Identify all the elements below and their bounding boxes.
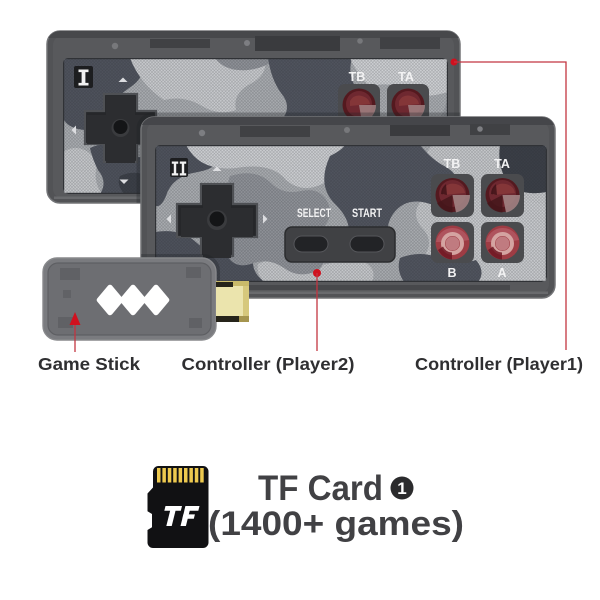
svg-text:Game Stick: Game Stick	[38, 354, 140, 374]
svg-text:A: A	[497, 266, 506, 280]
svg-text:TB: TB	[349, 70, 366, 84]
svg-text:Controller (Player2): Controller (Player2)	[182, 354, 355, 374]
svg-text:SELECT: SELECT	[297, 206, 331, 220]
svg-text:TA: TA	[494, 157, 510, 171]
svg-text:TA: TA	[398, 70, 414, 84]
svg-text:TF Card: TF Card	[258, 468, 383, 508]
svg-text:TB: TB	[444, 157, 461, 171]
svg-text:(1400+ games): (1400+ games)	[208, 505, 464, 543]
svg-text:Controller (Player1): Controller (Player1)	[415, 354, 583, 374]
svg-text:START: START	[352, 206, 383, 220]
svg-text:1: 1	[397, 479, 406, 498]
svg-text:B: B	[447, 266, 456, 280]
